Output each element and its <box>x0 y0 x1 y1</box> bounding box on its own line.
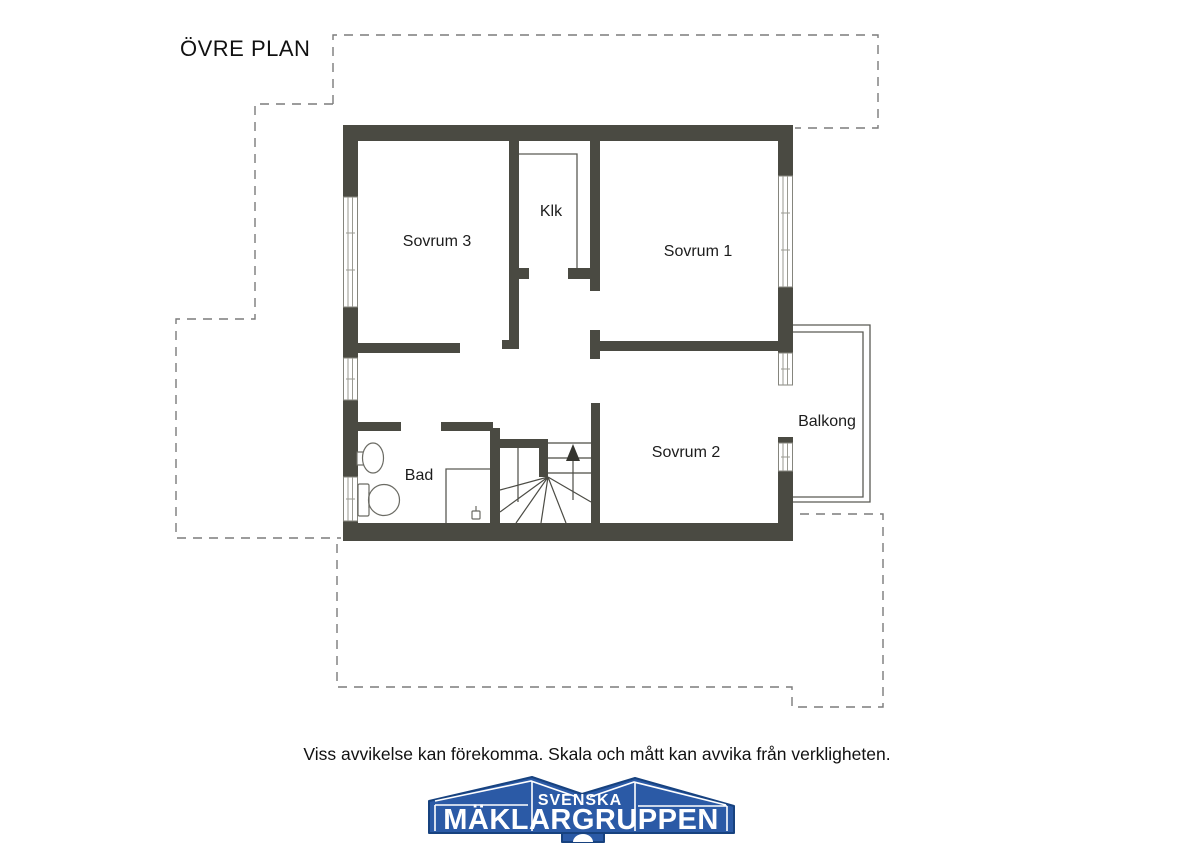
stair-wall-left <box>490 428 500 523</box>
sink-icon <box>357 443 384 473</box>
window-right-2 <box>779 353 793 385</box>
wall-right-segment <box>778 125 793 176</box>
wall-sovrum1-sovrum2 <box>600 341 778 351</box>
wall-left-segment <box>343 125 358 197</box>
wall-left-segment <box>343 521 358 540</box>
dashed-outline-bottom <box>337 514 883 707</box>
room-label-klk: Klk <box>540 203 563 220</box>
logo-text-maklargruppen: MÄKLARGRUPPEN <box>443 803 719 836</box>
floor-drain-icon <box>472 506 480 519</box>
room-label-balkong: Balkong <box>798 413 856 430</box>
stairs-up-arrow-icon <box>566 444 580 461</box>
wall-sovrum3-hall <box>358 343 460 353</box>
room-label-sovrum-2: Sovrum 2 <box>652 444 721 461</box>
door-jamb <box>568 268 590 279</box>
wall-sovrum3-klk <box>509 141 519 348</box>
wall-hall-pier <box>590 330 600 359</box>
disclaimer-text: Viss avvikelse kan förekomma. Skala och … <box>303 744 890 764</box>
wall-bad-right <box>441 422 493 431</box>
wall-klk-sovrum1 <box>590 141 600 291</box>
room-label-sovrum-1: Sovrum 1 <box>664 243 733 260</box>
stair-inner-wall-h <box>500 439 548 448</box>
room-label-bad: Bad <box>405 467 433 484</box>
wall-right-segment <box>778 437 793 443</box>
floorplan-svg: ÖVRE PLAN <box>0 0 1200 848</box>
wall-left-segment <box>343 307 358 358</box>
wall-top <box>343 125 793 141</box>
dashed-outline-left <box>176 104 341 538</box>
stair-inner-wall-v <box>539 448 548 477</box>
interior-walls <box>358 141 778 523</box>
dashed-outline-top <box>333 35 878 128</box>
window-right-1 <box>779 176 793 287</box>
stair-wall-right <box>591 403 600 523</box>
door-jamb <box>519 268 529 279</box>
shower-area-outline <box>446 469 490 523</box>
wall-right-segment <box>778 471 793 540</box>
floorplan-page: ÖVRE PLAN <box>0 0 1200 848</box>
wall-left-segment <box>343 400 358 477</box>
plan-title: ÖVRE PLAN <box>180 36 310 61</box>
window-left-3 <box>344 477 358 521</box>
window-left-1 <box>344 197 358 307</box>
toilet-icon <box>358 484 400 516</box>
window-left-2 <box>344 358 358 400</box>
company-logo: SVENSKA MÄKLARGRUPPEN <box>429 777 734 842</box>
wall-bottom <box>343 523 793 541</box>
wall-foot <box>502 340 519 349</box>
wall-right-segment <box>778 287 793 353</box>
window-right-3 <box>779 443 793 471</box>
room-label-sovrum-3: Sovrum 3 <box>403 233 472 250</box>
wall-bad-left <box>358 422 401 431</box>
